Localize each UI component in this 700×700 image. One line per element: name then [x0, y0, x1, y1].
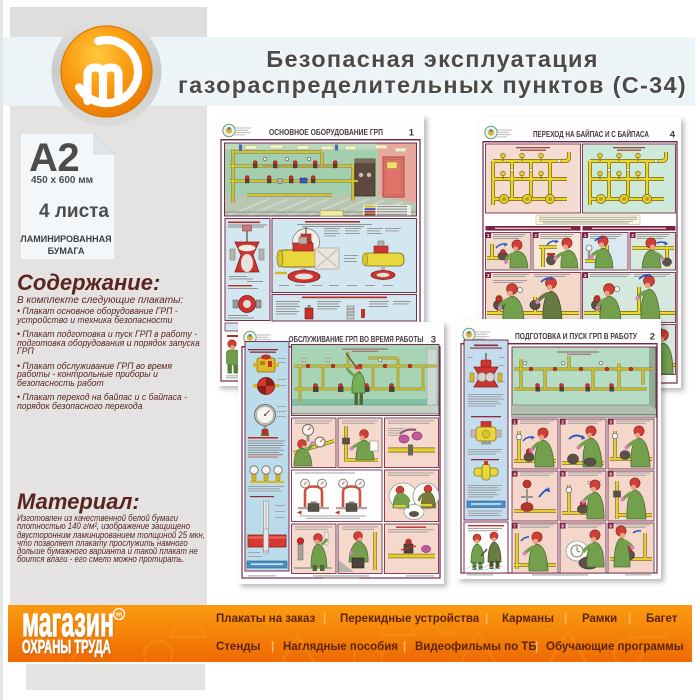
- svg-text:2: 2: [650, 332, 655, 343]
- svg-text:4: 4: [513, 472, 516, 477]
- svg-text:1: 1: [513, 420, 516, 425]
- svg-text:ОБСЛУЖИВАНИЕ ГРП ВО ВРЕМЯ РАБО: ОБСЛУЖИВАНИЕ ГРП ВО ВРЕМЯ РАБОТЫ: [289, 335, 424, 344]
- svg-text:2: 2: [631, 233, 634, 238]
- svg-text:3: 3: [431, 335, 436, 346]
- svg-text:2: 2: [561, 420, 564, 425]
- svg-text:ПЕРЕХОД НА БАЙПАС И С БАЙПАСА: ПЕРЕХОД НА БАЙПАС И С БАЙПАСА: [533, 130, 649, 139]
- svg-text:8: 8: [561, 524, 564, 529]
- svg-text:1: 1: [584, 233, 587, 238]
- svg-text:1: 1: [409, 128, 415, 139]
- svg-text:2: 2: [534, 233, 537, 238]
- svg-text:ОСНОВНОЕ ОБОРУДОВАНИЕ ГРП: ОСНОВНОЕ ОБОРУДОВАНИЕ ГРП: [269, 128, 383, 137]
- svg-text:ПОДГОТОВКА И ПУСК ГРП В РАБОТУ: ПОДГОТОВКА И ПУСК ГРП В РАБОТУ: [515, 332, 637, 341]
- svg-text:4: 4: [670, 130, 676, 141]
- svg-text:3: 3: [487, 273, 490, 278]
- svg-text:m: m: [116, 612, 122, 619]
- svg-text:3: 3: [609, 420, 612, 425]
- svg-text:1: 1: [487, 233, 490, 238]
- svg-text:6: 6: [609, 472, 612, 477]
- svg-text:3: 3: [584, 273, 587, 278]
- svg-text:9: 9: [609, 524, 612, 529]
- svg-text:7: 7: [513, 524, 516, 529]
- svg-text:5: 5: [561, 472, 564, 477]
